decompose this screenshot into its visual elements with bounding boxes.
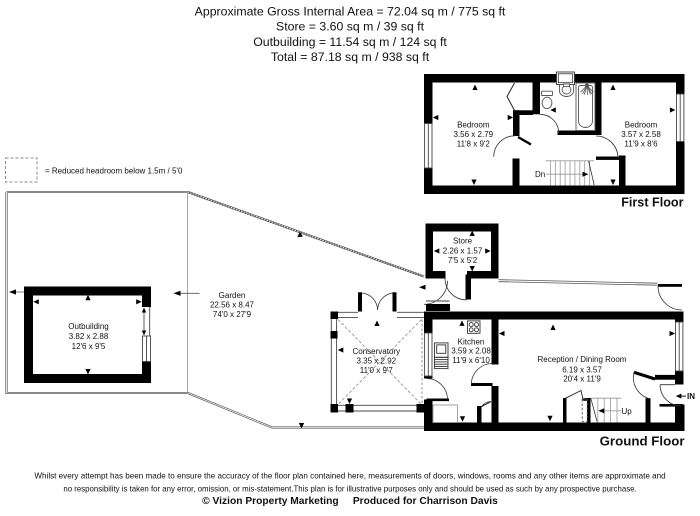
svg-text:Up: Up [622,407,633,416]
svg-text:Kitchen: Kitchen [458,338,485,347]
svg-text:Outbuilding = 11.54 sq m / 124: Outbuilding = 11.54 sq m / 124 sq ft [253,35,447,49]
svg-text:Whilst every attempt has been: Whilst every attempt has been made to en… [34,471,665,480]
svg-text:Ground Floor: Ground Floor [600,434,685,449]
svg-text:First Floor: First Floor [621,196,683,210]
svg-text:6.19 x 3.57: 6.19 x 3.57 [562,365,602,374]
svg-text:© Vizion Property Marketing: © Vizion Property Marketing Produced for… [202,496,498,507]
svg-text:= Reduced headroom below 1.5m: = Reduced headroom below 1.5m / 5'0 [45,167,183,176]
svg-text:Approximate Gross Internal Are: Approximate Gross Internal Area = 72.04 … [195,5,506,19]
svg-text:3.35 x 2.92: 3.35 x 2.92 [357,356,397,365]
svg-text:20'4 x 11'9: 20'4 x 11'9 [563,375,601,384]
svg-text:IN: IN [687,392,695,401]
svg-text:11'9 x 8'6: 11'9 x 8'6 [624,139,658,148]
svg-text:Dn: Dn [535,170,545,179]
svg-text:11'8 x 9'2: 11'8 x 9'2 [457,139,491,148]
svg-text:Store: Store [453,236,473,245]
svg-text:74'0 x 27'9: 74'0 x 27'9 [213,310,252,319]
svg-text:Reception / Dining Room: Reception / Dining Room [538,355,627,364]
svg-text:3.82 x 2.88: 3.82 x 2.88 [69,332,109,341]
svg-text:3.56 x 2.79: 3.56 x 2.79 [454,130,494,139]
svg-text:12'6 x 9'5: 12'6 x 9'5 [72,342,106,351]
svg-text:Garden: Garden [219,291,246,300]
svg-text:Bedroom: Bedroom [457,120,490,129]
svg-text:Bedroom: Bedroom [625,120,658,129]
svg-text:Total = 87.18 sq m / 938 sq ft: Total = 87.18 sq m / 938 sq ft [271,50,430,64]
svg-text:2.26 x 1.57: 2.26 x 1.57 [443,246,483,255]
svg-text:Store = 3.60 sq m / 39 sq ft: Store = 3.60 sq m / 39 sq ft [276,20,425,34]
svg-text:7'5 x 5'2: 7'5 x 5'2 [448,256,478,265]
svg-text:11'9 x 6'10: 11'9 x 6'10 [452,356,490,365]
svg-text:Conservatory: Conservatory [353,347,401,356]
svg-text:22.56 x 8.47: 22.56 x 8.47 [210,301,255,310]
svg-text:Outbuilding: Outbuilding [68,322,108,331]
svg-text:3.57 x 2.58: 3.57 x 2.58 [621,130,661,139]
svg-text:3.59 x 2.08: 3.59 x 2.08 [451,347,491,356]
svg-text:11'0 x 9'7: 11'0 x 9'7 [360,366,394,375]
svg-text:no responsibility is taken for: no responsibility is taken for any error… [63,484,636,493]
